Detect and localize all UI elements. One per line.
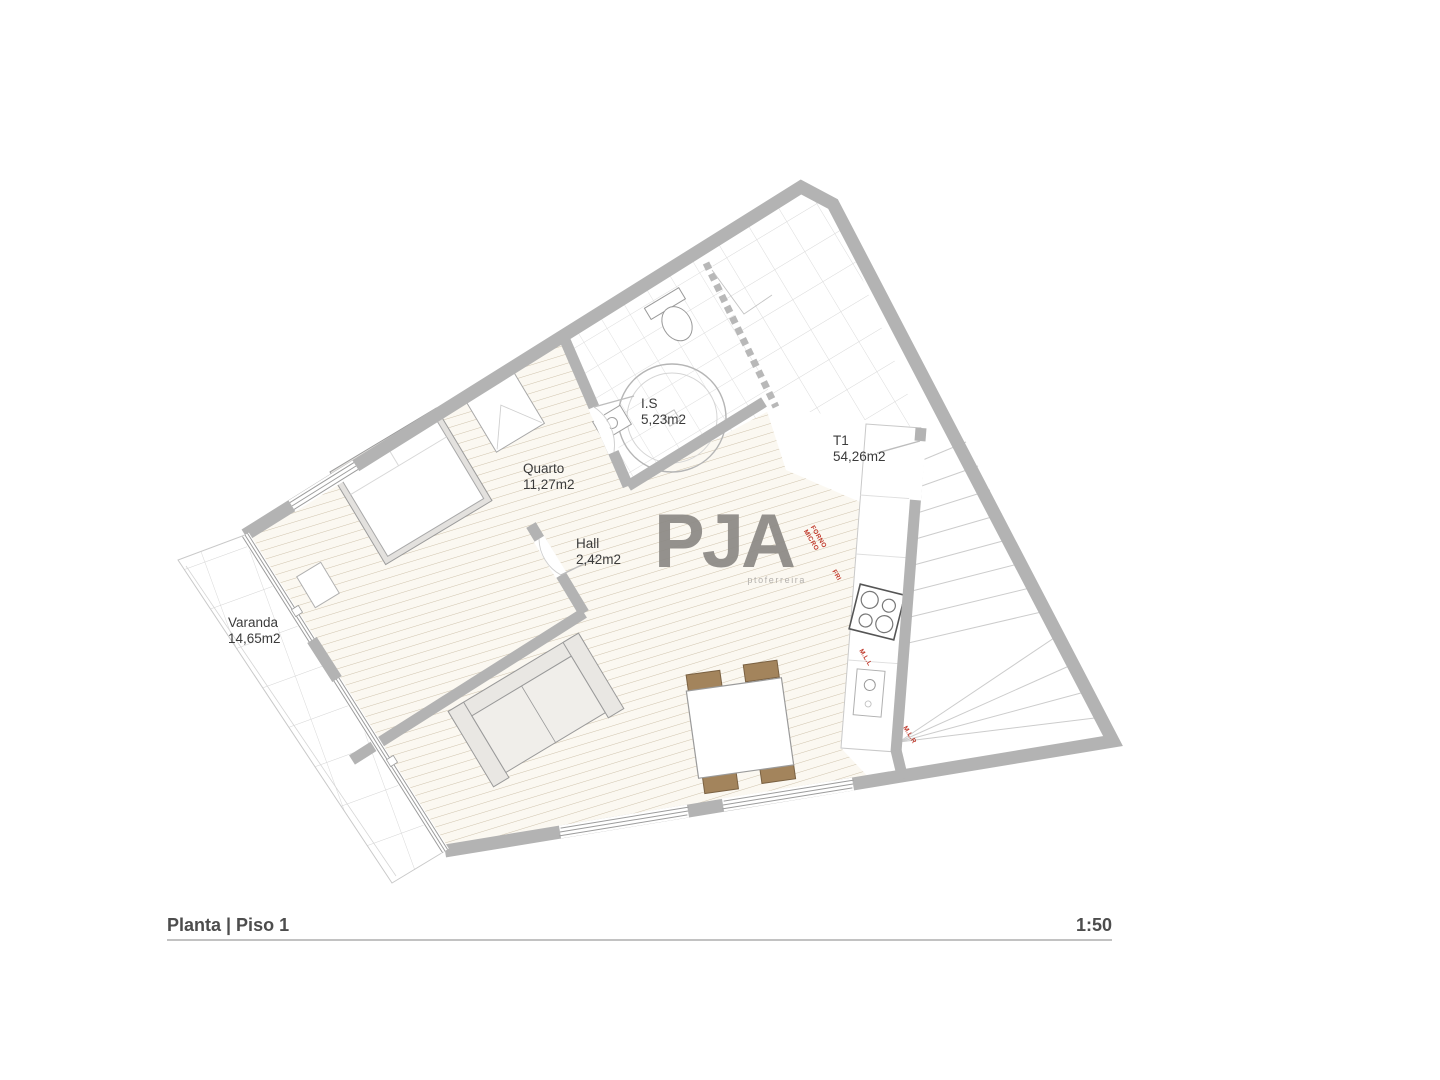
logo: PJA ptoferreira bbox=[654, 499, 806, 585]
room-area-is: 5,23m2 bbox=[641, 412, 686, 427]
room-label-is: I.S bbox=[641, 396, 658, 411]
drawing-scale: 1:50 bbox=[1076, 915, 1112, 935]
room-area-t1: 54,26m2 bbox=[833, 449, 886, 464]
hob bbox=[849, 584, 905, 640]
logo-subtitle: ptoferreira bbox=[747, 575, 806, 585]
logo-text: PJA bbox=[654, 499, 794, 584]
room-label-hall: Hall bbox=[576, 536, 599, 551]
room-area-varanda: 14,65m2 bbox=[228, 631, 281, 646]
drawing-sheet: I.S 5,23m2 Quarto 11,27m2 Hall 2,42m2 T1… bbox=[0, 0, 1440, 1080]
room-label-varanda: Varanda bbox=[228, 615, 279, 630]
floor-plan-svg: I.S 5,23m2 Quarto 11,27m2 Hall 2,42m2 T1… bbox=[0, 0, 1440, 1080]
table bbox=[686, 678, 793, 779]
title-block: Planta | Piso 1 1:50 bbox=[167, 915, 1112, 940]
room-label-t1: T1 bbox=[833, 433, 849, 448]
room-area-quarto: 11,27m2 bbox=[523, 477, 575, 492]
room-area-hall: 2,42m2 bbox=[576, 552, 621, 567]
staircase bbox=[899, 442, 1103, 742]
drawing-title: Planta | Piso 1 bbox=[167, 915, 289, 935]
room-label-quarto: Quarto bbox=[523, 461, 564, 476]
kitchen-sink bbox=[853, 669, 885, 717]
